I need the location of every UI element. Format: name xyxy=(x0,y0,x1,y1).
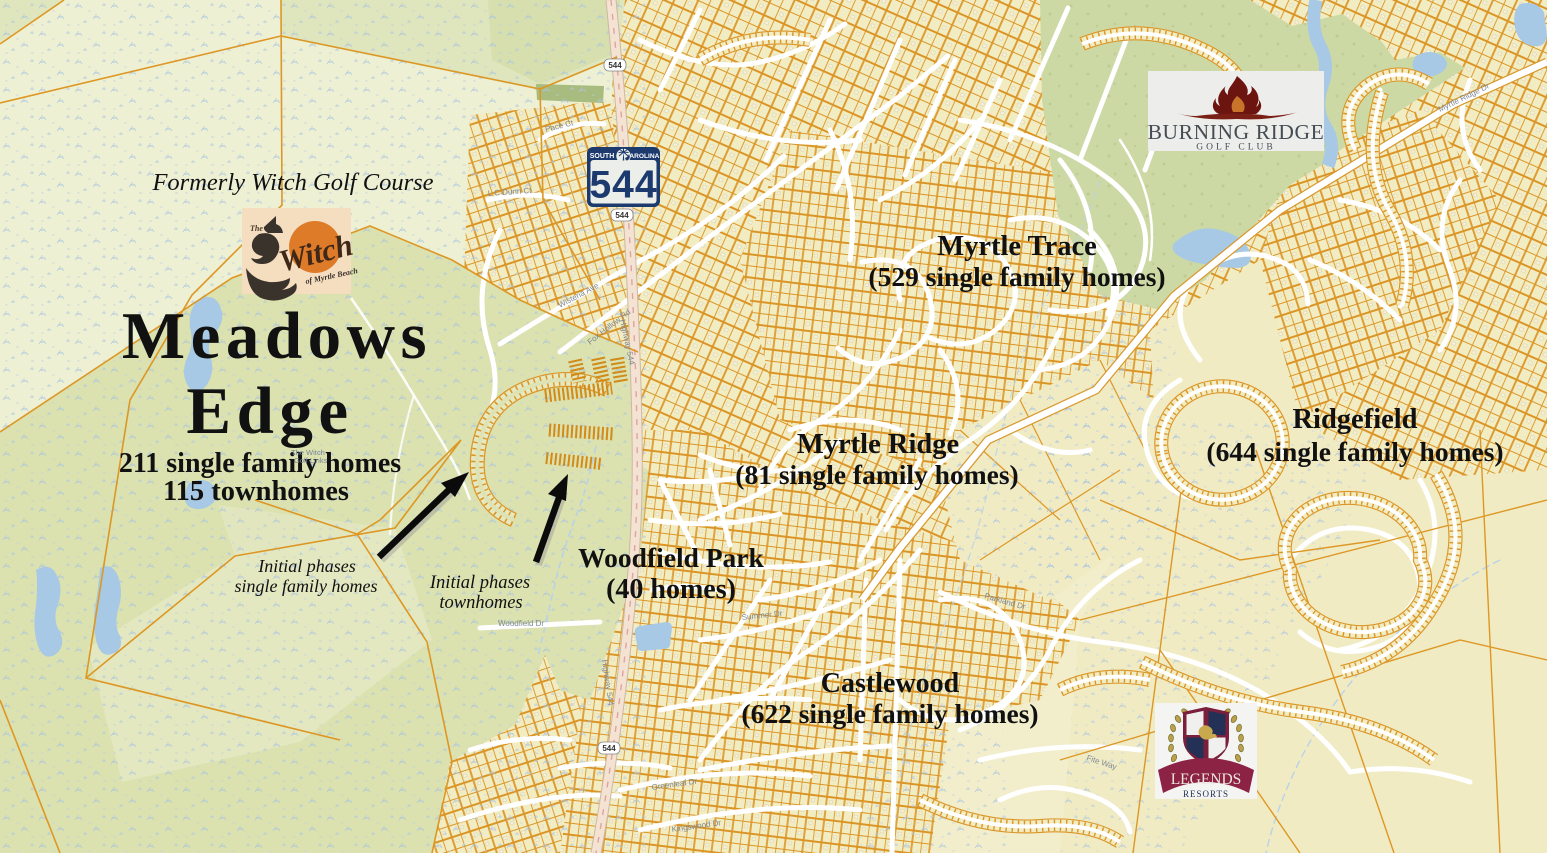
svg-text:LEGENDS: LEGENDS xyxy=(1171,771,1242,788)
svg-text:544: 544 xyxy=(602,744,616,753)
svg-text:Castlewood: Castlewood xyxy=(821,668,960,699)
svg-text:Golf Links: Golf Links xyxy=(294,456,328,465)
svg-text:Ridgefield: Ridgefield xyxy=(1292,404,1417,435)
svg-text:Meadows: Meadows xyxy=(122,299,432,373)
svg-text:(644 single family homes): (644 single family homes) xyxy=(1206,436,1503,467)
svg-text:(81 single family homes): (81 single family homes) xyxy=(735,459,1018,490)
svg-text:544: 544 xyxy=(589,164,657,207)
svg-text:RESORTS: RESORTS xyxy=(1183,789,1229,799)
svg-text:Initial phases: Initial phases xyxy=(429,573,530,593)
svg-text:Initial phases: Initial phases xyxy=(257,556,356,576)
svg-text:GOLF CLUB: GOLF CLUB xyxy=(1196,143,1276,153)
svg-text:(622 single family homes): (622 single family homes) xyxy=(741,698,1038,729)
svg-text:544: 544 xyxy=(608,61,622,70)
svg-text:Edge: Edge xyxy=(186,374,353,448)
svg-text:townhomes: townhomes xyxy=(439,593,522,613)
svg-text:211 single family homes: 211 single family homes xyxy=(119,448,401,479)
svg-text:(40 homes): (40 homes) xyxy=(606,574,736,605)
svg-text:544: 544 xyxy=(615,211,629,220)
svg-text:(529 single family homes): (529 single family homes) xyxy=(868,261,1165,292)
svg-text:Myrtle Ridge: Myrtle Ridge xyxy=(797,429,959,460)
svg-text:Myrtle Trace: Myrtle Trace xyxy=(937,231,1097,262)
svg-text:single family homes: single family homes xyxy=(235,576,378,596)
svg-text:Woodfield Park: Woodfield Park xyxy=(578,542,764,573)
svg-text:115 townhomes: 115 townhomes xyxy=(163,476,349,507)
svg-text:SOUTH: SOUTH xyxy=(590,153,615,160)
svg-text:Formerly Witch Golf Course: Formerly Witch Golf Course xyxy=(151,169,433,196)
svg-text:BURNING RIDGE: BURNING RIDGE xyxy=(1148,120,1325,144)
svg-text:The: The xyxy=(250,224,263,233)
svg-text:Woodfield Dr: Woodfield Dr xyxy=(498,619,544,628)
